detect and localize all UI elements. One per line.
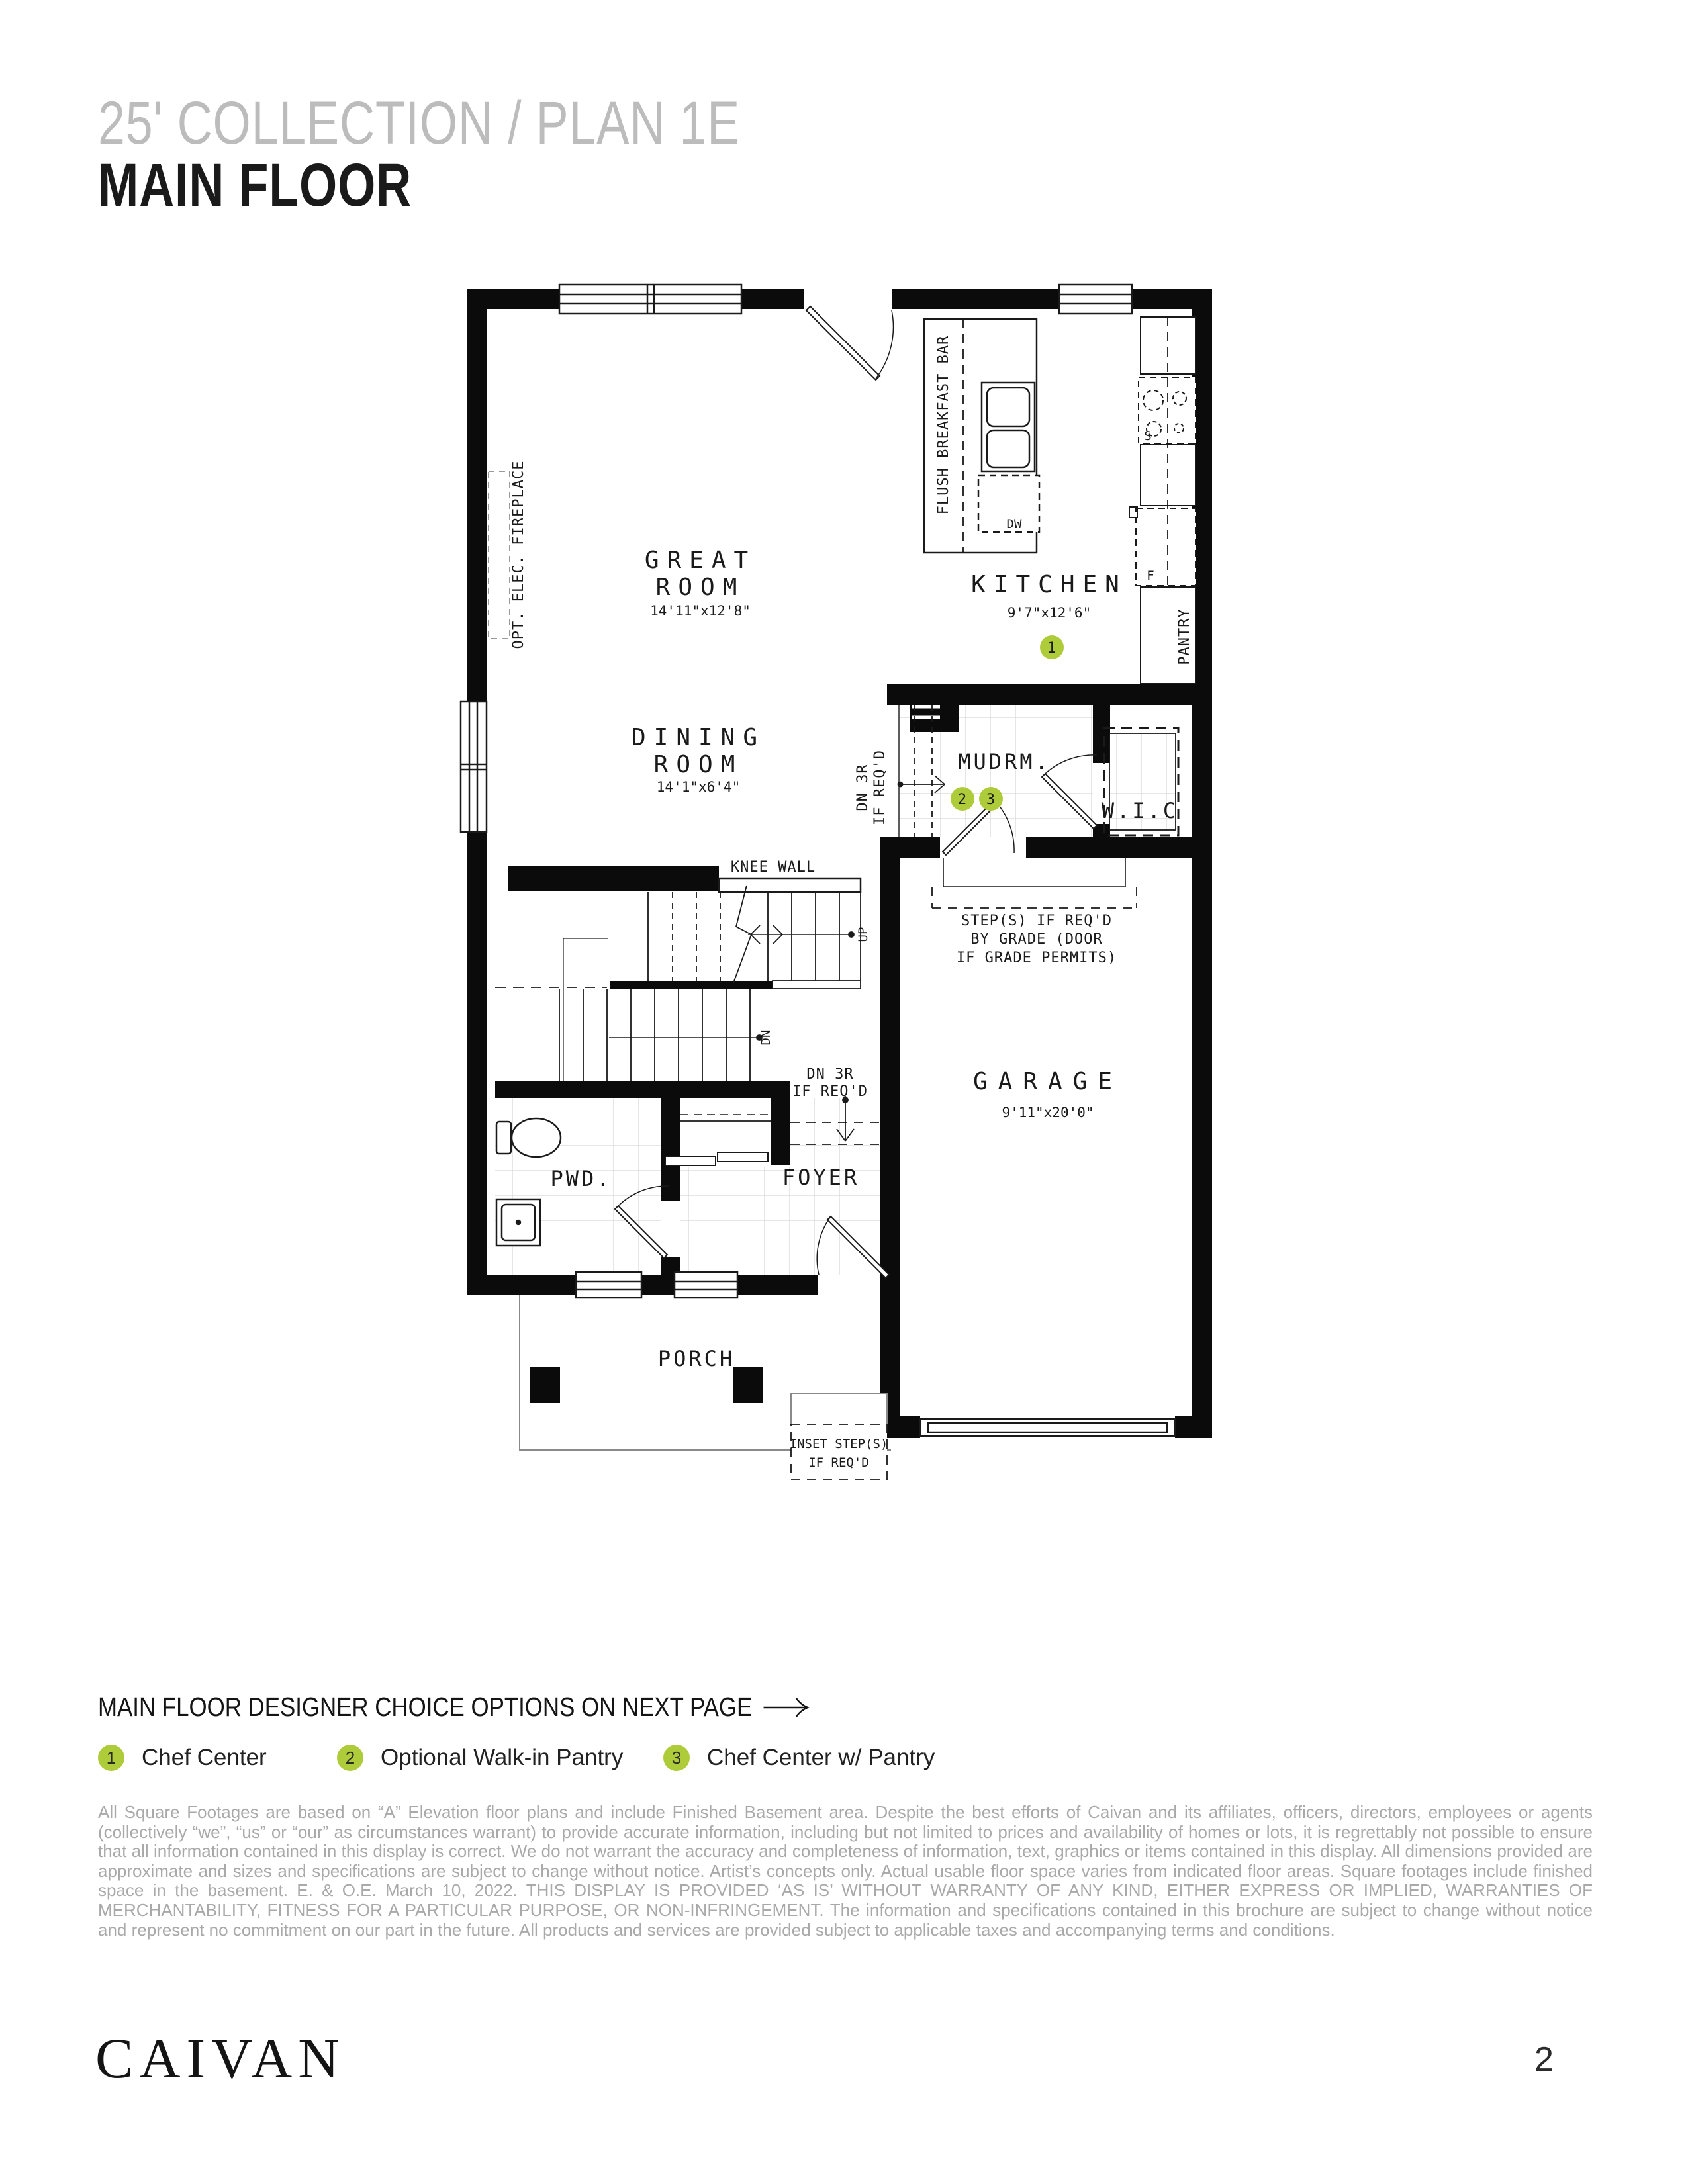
label-dn3r: IF REQ'D xyxy=(872,750,888,825)
page-title-floor: MAIN FLOOR xyxy=(98,151,412,220)
label-dn3r-foyer: IF REQ'D xyxy=(792,1083,868,1100)
page-number: 2 xyxy=(1534,2040,1554,2079)
sink-basin-icon xyxy=(987,388,1029,426)
brochure-page: 25' COLLECTION / PLAN 1E MAIN FLOOR xyxy=(0,0,1688,2184)
label-mudroom: MUDRM. xyxy=(958,749,1051,774)
garage-step-bracket xyxy=(932,858,1137,908)
label-great-room: GREAT xyxy=(645,547,756,574)
option-marker-3-num: 3 xyxy=(986,792,996,808)
sink-basin-icon xyxy=(987,430,1029,467)
legend-marker-1: 1 xyxy=(98,1745,124,1771)
fridge-icon xyxy=(1136,508,1196,586)
label-inset-steps: INSET STEP(S) xyxy=(790,1437,888,1451)
label-flush-breakfast-bar: FLUSH BREAKFAST BAR xyxy=(935,336,952,515)
legend-marker-2: 2 xyxy=(337,1745,363,1771)
porch-post-icon xyxy=(530,1367,560,1403)
legend-marker-3: 3 xyxy=(663,1745,690,1771)
label-steps-if-reqd: BY GRADE (DOOR xyxy=(970,931,1102,948)
toilet-icon xyxy=(496,1122,511,1154)
legend-label-2: Optional Walk-in Pantry xyxy=(381,1745,623,1771)
porch-structure xyxy=(520,1295,891,1480)
label-dn3r-foyer: DN 3R xyxy=(806,1066,853,1083)
label-pantry: PANTRY xyxy=(1176,608,1193,664)
options-heading-text: MAIN FLOOR DESIGNER CHOICE OPTIONS ON NE… xyxy=(98,1692,752,1723)
label-dw: DW xyxy=(1007,517,1022,531)
fireplace-icon xyxy=(489,471,510,639)
label-steps-if-reqd: IF GRADE PERMITS) xyxy=(957,950,1117,966)
label-dn3r: DN 3R xyxy=(855,764,871,811)
label-opt-fireplace: OPT. ELEC. FIREPLACE xyxy=(510,461,527,649)
label-up: UP xyxy=(856,927,870,942)
label-knee-wall: KNEE WALL xyxy=(731,859,816,876)
label-great-room: ROOM xyxy=(656,574,745,601)
foyer-closet xyxy=(665,1115,771,1165)
legend-item-chef-center-pantry: 3 Chef Center w/ Pantry xyxy=(663,1745,935,1771)
label-steps-if-reqd: STEP(S) IF REQ'D xyxy=(961,913,1112,929)
label-foyer: FOYER xyxy=(782,1165,859,1190)
label-fridge-f: F xyxy=(1147,569,1154,583)
porch-post-icon xyxy=(733,1367,763,1403)
label-kitchen: KITCHEN xyxy=(971,571,1127,598)
label-stove-s: S xyxy=(1144,429,1151,443)
option-marker-1-num: 1 xyxy=(1047,640,1056,657)
arrow-right-icon xyxy=(763,1696,810,1719)
label-dn: DN xyxy=(759,1030,773,1046)
legend-item-chef-center: 1 Chef Center xyxy=(98,1745,267,1771)
label-kitchen-dims: 9'7"x12'6" xyxy=(1008,605,1091,621)
label-porch: PORCH xyxy=(658,1346,735,1371)
option-marker-2-num: 2 xyxy=(958,792,967,808)
label-dining-room: ROOM xyxy=(654,751,743,778)
page-title-collection: 25' COLLECTION / PLAN 1E xyxy=(98,89,740,158)
legend-item-walkin-pantry: 2 Optional Walk-in Pantry xyxy=(337,1745,623,1771)
label-dining-room: DINING xyxy=(632,724,765,751)
options-heading: MAIN FLOOR DESIGNER CHOICE OPTIONS ON NE… xyxy=(98,1692,810,1723)
label-dining-room-dims: 14'1"x6'4" xyxy=(657,779,740,795)
disclaimer-text: All Square Footages are based on “A” Ele… xyxy=(98,1803,1593,1940)
floor-plan: GREAT ROOM 14'11"x12'8" KITCHEN 9'7"x12'… xyxy=(437,265,1244,1496)
label-powder: PWD. xyxy=(550,1166,612,1191)
label-inset-steps: IF REQ'D xyxy=(808,1455,869,1470)
legend-label-3: Chef Center w/ Pantry xyxy=(707,1745,935,1771)
label-great-room-dims: 14'11"x12'8" xyxy=(650,603,751,619)
annotations: OPT. ELEC. FIREPLACE FLUSH BREAKFAST BAR… xyxy=(510,336,1193,1470)
brand-logo: CAIVAN xyxy=(95,2025,345,2091)
label-garage-dims: 9'11"x20'0" xyxy=(1002,1105,1094,1120)
stairs xyxy=(495,878,861,1081)
label-garage: GARAGE xyxy=(973,1068,1123,1095)
label-wic: W.I.C xyxy=(1102,798,1178,823)
toilet-icon xyxy=(512,1118,561,1157)
legend-label-1: Chef Center xyxy=(142,1745,267,1771)
